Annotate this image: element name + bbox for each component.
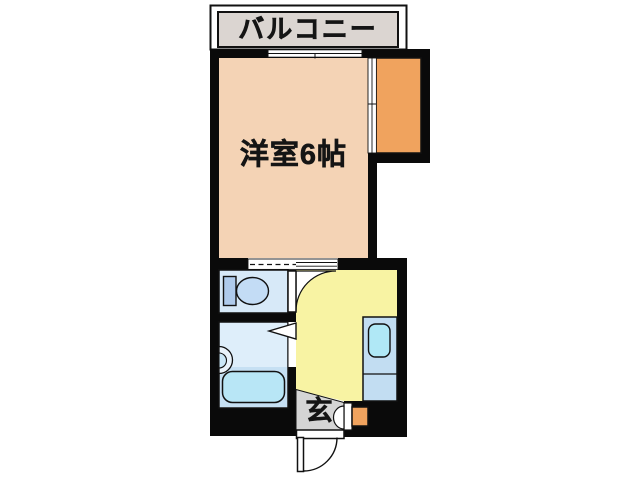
wall-mainroom-right bbox=[368, 153, 377, 270]
toilet-icon bbox=[224, 277, 269, 306]
kitchen-sink-icon bbox=[363, 317, 397, 401]
shoe-cabinet bbox=[352, 407, 368, 426]
wall-left bbox=[210, 49, 219, 436]
wall-right-upper bbox=[421, 49, 430, 163]
floorplan-drawing bbox=[0, 0, 640, 480]
wall-mid-left bbox=[219, 258, 248, 270]
wall-closet-bottom bbox=[368, 153, 430, 163]
main-room-area bbox=[219, 58, 368, 258]
balcony-area bbox=[218, 12, 398, 47]
closet-door-icon bbox=[368, 58, 376, 153]
entrance-door-icon bbox=[298, 438, 338, 472]
wall-mid-right bbox=[338, 258, 407, 270]
wall-bottom-left bbox=[210, 408, 296, 436]
window-icon bbox=[268, 50, 362, 59]
wall-toilet-bath bbox=[219, 313, 296, 322]
floorplan-image: バルコニー 洋室6帖 玄 bbox=[0, 0, 640, 480]
sliding-door-icon bbox=[248, 259, 338, 269]
closet-area bbox=[375, 58, 421, 153]
bathtub-icon bbox=[223, 372, 285, 403]
